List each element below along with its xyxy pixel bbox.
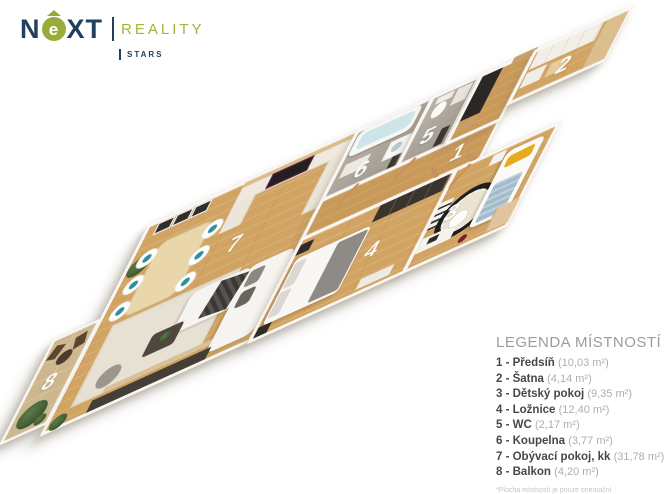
legend: LEGENDA MÍSTNOSTÍ 1 - Předsíň (10,03 m²)… xyxy=(496,334,668,494)
plate xyxy=(179,276,191,288)
legend-item: 3 - Dětský pokoj (9,35 m²) xyxy=(496,388,668,400)
bedroom-bench xyxy=(355,264,394,290)
brand-logo-subrow: STARS xyxy=(119,48,205,60)
legend-item-name: 1 - Předsíň xyxy=(496,357,558,369)
logo-letter-n: N xyxy=(20,14,41,45)
legend-item-name: 7 - Obývací pokoj, kk xyxy=(496,451,614,463)
plate xyxy=(206,223,218,235)
room-number-7: 7 xyxy=(221,229,247,260)
logo-stars-text: STARS xyxy=(127,50,164,59)
legend-item-name: 4 - Ložnice xyxy=(496,404,559,416)
legend-item-area: (10,03 m²) xyxy=(558,357,609,369)
legend-item-name: 2 - Šatna xyxy=(496,373,547,385)
watermark-text: NEXT xyxy=(424,12,555,56)
legend-item-area: (31,78 m²) xyxy=(614,451,665,463)
legend-item-area: (4,20 m²) xyxy=(554,466,599,478)
balcony-chair xyxy=(73,331,88,350)
toy-ball xyxy=(456,233,468,245)
legend-item: 7 - Obývací pokoj, kk (31,78 m²) xyxy=(496,451,668,463)
logo-e-badge: e xyxy=(42,17,66,41)
logo-letter-e: e xyxy=(49,21,58,38)
logo-sub-divider xyxy=(119,49,121,60)
legend-item-name: 3 - Dětský pokoj xyxy=(496,388,587,400)
logo-reality-text: REALITY xyxy=(121,21,205,38)
legend-footnote: *Plocha místností je pouze orientační xyxy=(496,487,668,494)
legend-item-area: (4,14 m²) xyxy=(547,373,592,385)
watermark-caret-icon xyxy=(468,7,488,16)
logo-caret-icon xyxy=(47,10,61,16)
legend-item-name: 5 - WC xyxy=(496,419,535,431)
legend-item-name: 6 - Koupelna xyxy=(496,435,568,447)
legend-item-area: (2,17 m²) xyxy=(535,419,580,431)
brand-logo-row: N e XT REALITY xyxy=(20,14,205,44)
legend-item: 4 - Ložnice (12,40 m²) xyxy=(496,404,668,416)
legend-item: 8 - Balkon (4,20 m²) xyxy=(496,466,668,478)
watermark: NEXT xyxy=(424,12,555,57)
entry-bench xyxy=(455,117,477,134)
brand-logo: N e XT REALITY STARS xyxy=(20,14,205,60)
legend-item: 2 - Šatna (4,14 m²) xyxy=(496,373,668,385)
plate xyxy=(193,249,205,261)
room-number-8: 8 xyxy=(36,367,62,398)
legend-title: LEGENDA MÍSTNOSTÍ xyxy=(496,334,668,351)
legend-item-area: (3,77 m²) xyxy=(568,435,613,447)
legend-item-area: (9,35 m²) xyxy=(587,388,632,400)
legend-item: 1 - Předsíň (10,03 m²) xyxy=(496,357,668,369)
legend-item-name: 8 - Balkon xyxy=(496,466,554,478)
legend-item-area: (12,40 m²) xyxy=(559,404,610,416)
legend-item: 5 - WC (2,17 m²) xyxy=(496,419,668,431)
logo-divider xyxy=(112,17,114,41)
legend-item: 6 - Koupelna (3,77 m²) xyxy=(496,435,668,447)
logo-letters-xt: XT xyxy=(67,14,104,45)
